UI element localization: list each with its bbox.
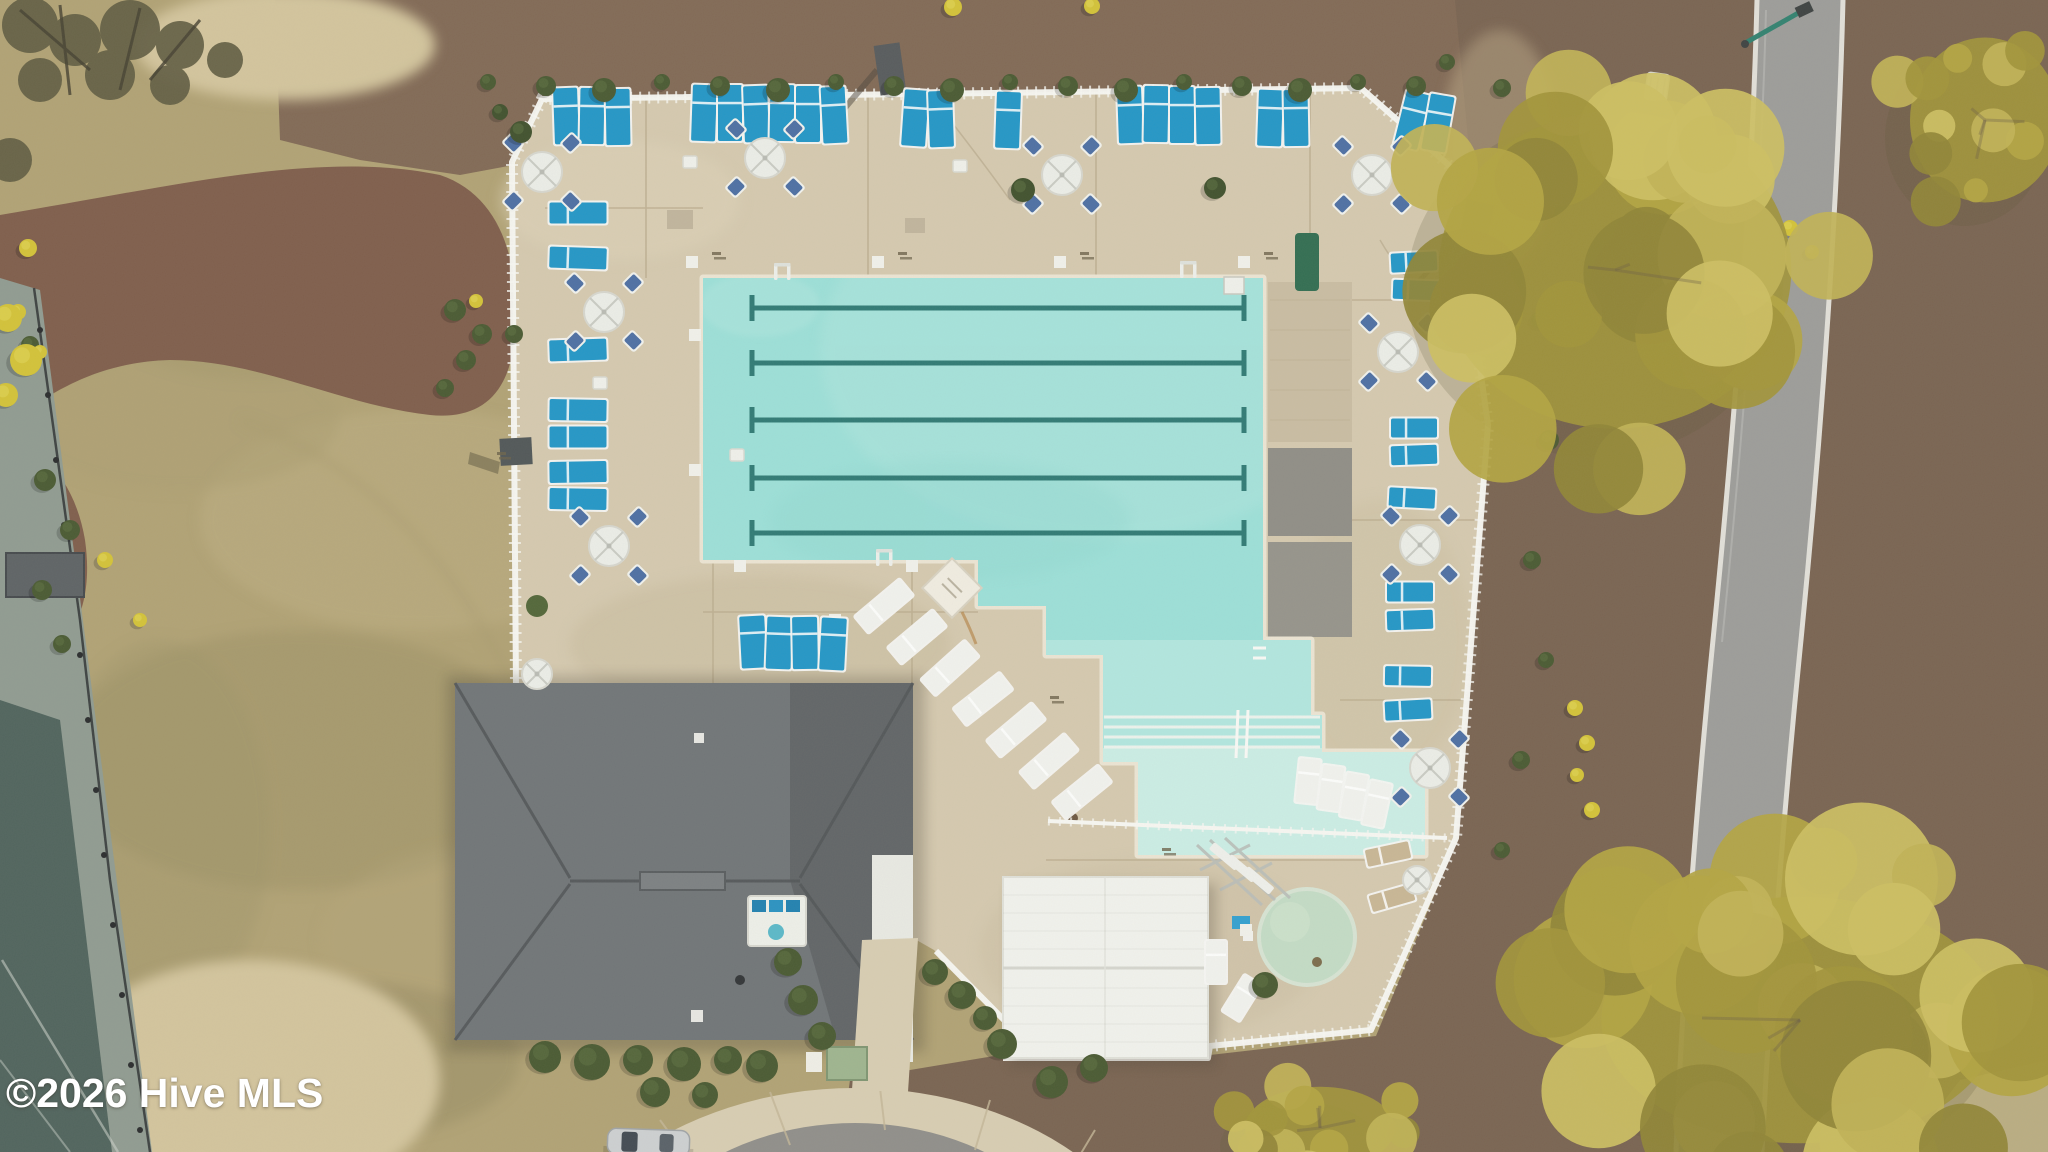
color-cast (0, 0, 2048, 1152)
aerial-photo: ©2026 Hive MLS (0, 0, 2048, 1152)
mls-watermark: ©2026 Hive MLS (6, 1070, 323, 1117)
scene-svg (0, 0, 2048, 1152)
